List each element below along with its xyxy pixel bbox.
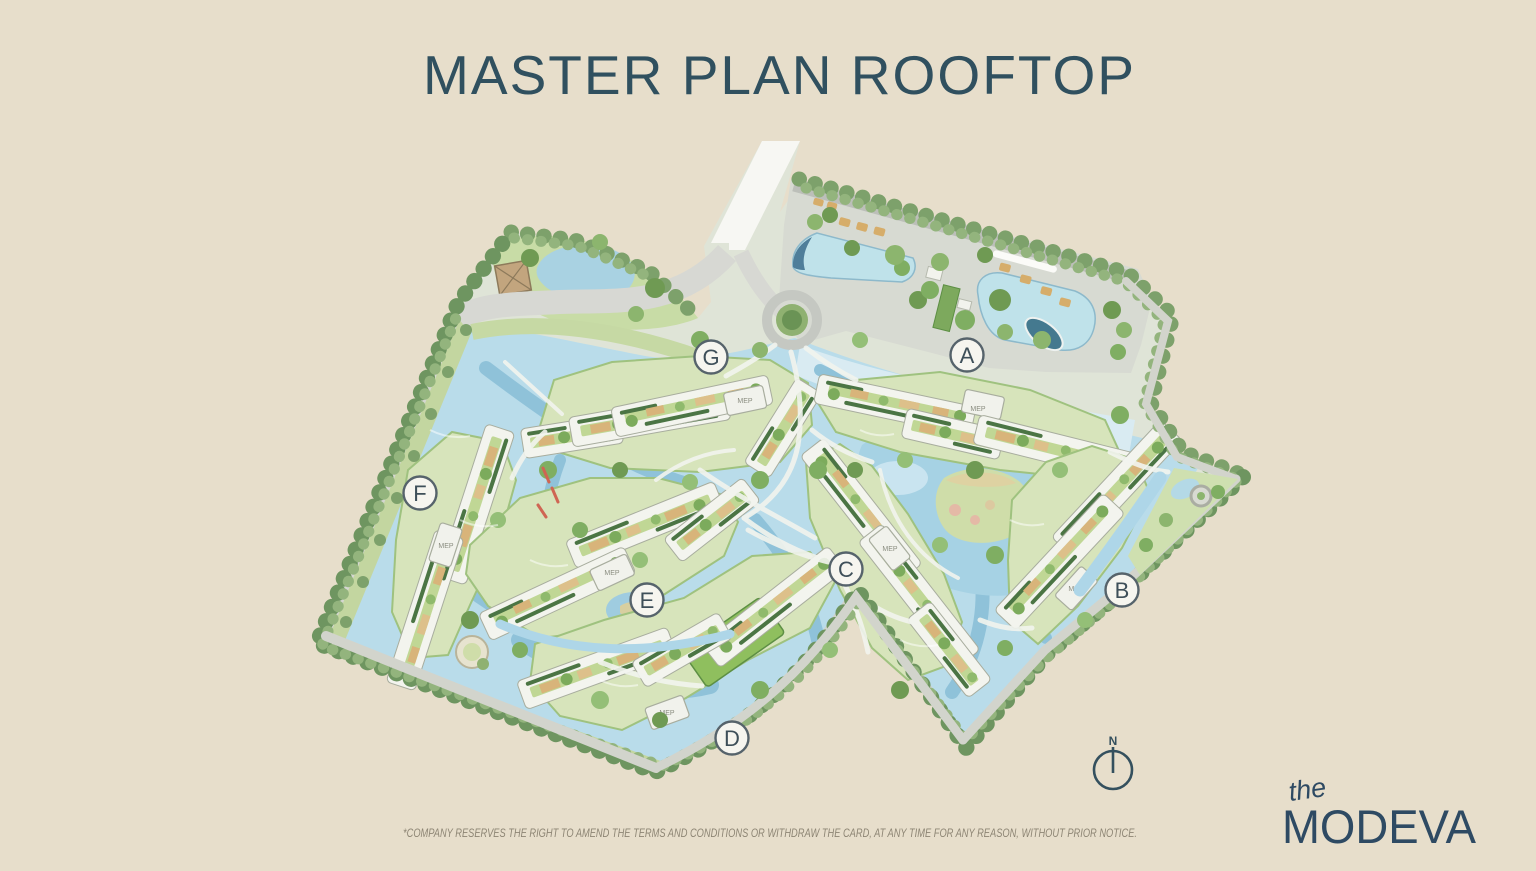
svg-text:G: G [702,345,719,370]
svg-text:B: B [1115,578,1130,603]
svg-text:C: C [838,557,854,582]
svg-text:MODEVA: MODEVA [1282,800,1477,853]
svg-text:E: E [640,588,655,613]
svg-text:MEP: MEP [882,546,898,553]
svg-text:MASTER PLAN ROOFTOP: MASTER PLAN ROOFTOP [423,44,1136,106]
svg-text:MEP: MEP [970,406,986,413]
svg-text:MEP: MEP [438,543,454,550]
svg-text:F: F [413,481,426,506]
svg-text:MEP: MEP [604,570,620,577]
svg-text:MEP: MEP [737,398,753,405]
svg-text:*COMPANY RESERVES THE RIGHT TO: *COMPANY RESERVES THE RIGHT TO AMEND THE… [403,826,1137,840]
svg-text:N: N [1109,734,1118,748]
svg-text:D: D [724,726,740,751]
svg-text:A: A [960,343,975,368]
